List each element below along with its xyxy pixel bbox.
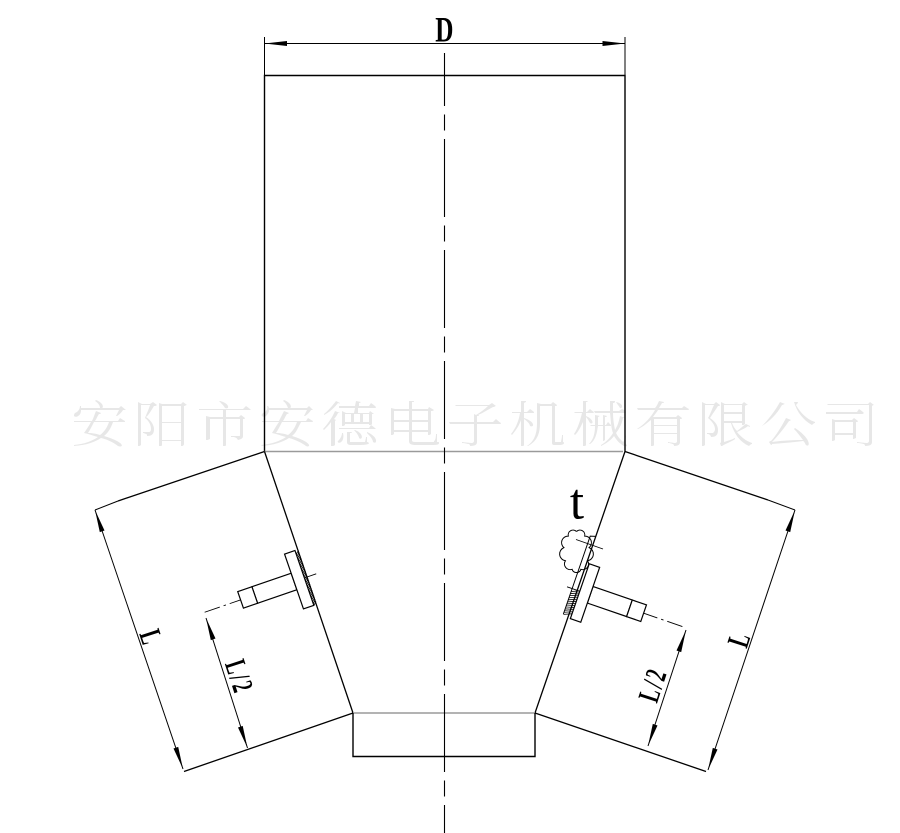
svg-text:t: t — [570, 475, 584, 531]
svg-text:D: D — [435, 9, 453, 50]
